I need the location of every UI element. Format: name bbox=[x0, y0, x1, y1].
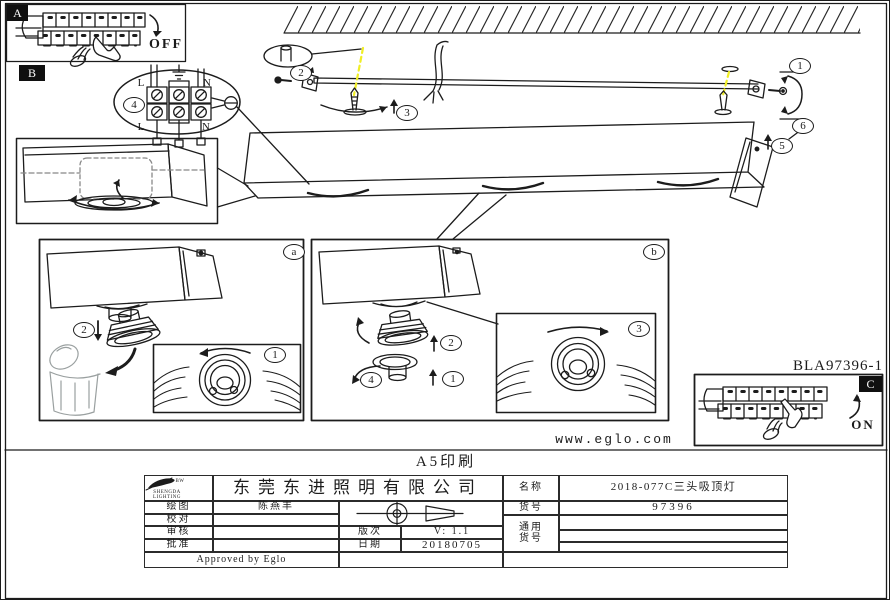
common-item-label-line1: 通用 bbox=[519, 523, 543, 534]
panel-label-c-text: C bbox=[866, 377, 874, 392]
spot-rotation-box-drawing bbox=[17, 139, 256, 224]
spot-head-2 bbox=[483, 183, 543, 189]
spot-bulb-icon-2 bbox=[374, 308, 428, 348]
terminal-label-live-bottom: L bbox=[134, 121, 148, 133]
panel-label-b-text: B bbox=[28, 66, 36, 81]
power-on-panel-drawing bbox=[695, 375, 883, 446]
detail-b-label: b bbox=[643, 244, 665, 260]
common-item-row-2 bbox=[559, 530, 788, 542]
check-value bbox=[213, 514, 339, 526]
common-item-row-1 bbox=[559, 515, 788, 530]
approved-by: Approved by Eglo bbox=[144, 552, 339, 568]
screw-icon bbox=[212, 97, 237, 110]
trash-bin-icon bbox=[46, 340, 100, 415]
name-label: 名称 bbox=[503, 475, 559, 501]
terminal-label-neutral-top: N bbox=[200, 77, 214, 89]
step-6-marker: 6 bbox=[792, 118, 814, 134]
website-text: www.eglo.com bbox=[539, 431, 689, 447]
detail-b-drawing bbox=[312, 240, 669, 421]
approve-label: 批准 bbox=[144, 539, 213, 552]
approve-value bbox=[213, 539, 339, 552]
hands-icon-2 bbox=[497, 361, 655, 405]
panel-label-a: A bbox=[7, 5, 28, 21]
draw-value: 陈燕丰 bbox=[213, 501, 339, 514]
company-name: 东莞东进照明有限公司 bbox=[213, 475, 503, 501]
step-1-marker: 1 bbox=[789, 58, 811, 74]
detail-a-step-1: 1 bbox=[264, 347, 286, 363]
terminal-label-live-top: L bbox=[134, 77, 148, 89]
common-item-row-3 bbox=[559, 542, 788, 552]
projection-symbol-cell bbox=[339, 501, 503, 526]
step-4-marker: 4 bbox=[123, 97, 145, 113]
drawing-number: BLA97396-1 bbox=[749, 358, 883, 374]
step-3-marker: 3 bbox=[396, 105, 418, 121]
bottom-empty-cell bbox=[503, 552, 788, 568]
name-value: 2018-077C三头吸顶灯 bbox=[559, 475, 788, 501]
terminal-label-neutral-bottom: N bbox=[199, 121, 213, 133]
spot-head-3 bbox=[658, 179, 718, 185]
detail-b-step-3: 3 bbox=[628, 321, 650, 337]
detail-b-step-2: 2 bbox=[440, 335, 462, 351]
draw-label: 绘图 bbox=[144, 501, 213, 514]
check-label: 校对 bbox=[144, 514, 213, 526]
middle-empty-cell bbox=[339, 552, 503, 568]
hand-icon-2 bbox=[781, 399, 802, 428]
version-value: V: 1.1 bbox=[401, 526, 503, 539]
item-value: 97396 bbox=[559, 501, 788, 515]
detail-a-step-2: 2 bbox=[73, 322, 95, 338]
detail-a-label: a bbox=[283, 244, 305, 260]
common-item-label-line2: 货号 bbox=[519, 534, 543, 545]
main-assembly-drawing bbox=[244, 6, 860, 239]
date-label: 日期 bbox=[339, 539, 401, 552]
instruction-sheet: A B C OFF ON L N L N 2 3 1 6 5 4 a 2 1 b… bbox=[0, 0, 890, 600]
detail-b-step-1: 1 bbox=[442, 371, 464, 387]
audit-label: 审核 bbox=[144, 526, 213, 539]
off-text: OFF bbox=[143, 37, 189, 53]
ground-symbol-icon bbox=[173, 65, 185, 79]
print-spec-text: A5印刷 bbox=[399, 452, 493, 469]
screw-alignment-highlight bbox=[354, 48, 363, 95]
logo-suffix: BW bbox=[173, 478, 187, 484]
panel-label-a-text: A bbox=[13, 6, 22, 21]
common-item-label: 通用 货号 bbox=[503, 515, 559, 552]
step-2-marker: 2 bbox=[290, 65, 312, 81]
audit-value bbox=[213, 526, 339, 539]
panel-label-b: B bbox=[19, 65, 45, 81]
panel-label-c: C bbox=[859, 376, 882, 392]
ceiling-hatch bbox=[284, 6, 860, 33]
logo-line-2: LIGHTING bbox=[147, 494, 187, 500]
step-5-marker: 5 bbox=[771, 138, 793, 154]
on-text: ON bbox=[843, 417, 883, 432]
version-label: 版次 bbox=[339, 526, 401, 539]
item-label: 货号 bbox=[503, 501, 559, 515]
date-value: 20180705 bbox=[401, 539, 503, 552]
detail-b-step-4: 4 bbox=[360, 372, 382, 388]
